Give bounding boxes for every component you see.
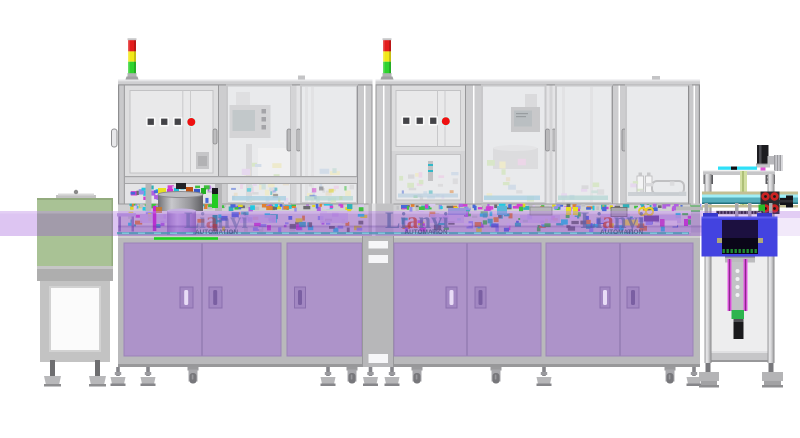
svg-text:AUTOMATION: AUTOMATION <box>405 229 448 236</box>
svg-text:AUTOMATION: AUTOMATION <box>600 229 643 236</box>
svg-text:AUTOMATION: AUTOMATION <box>195 229 238 236</box>
